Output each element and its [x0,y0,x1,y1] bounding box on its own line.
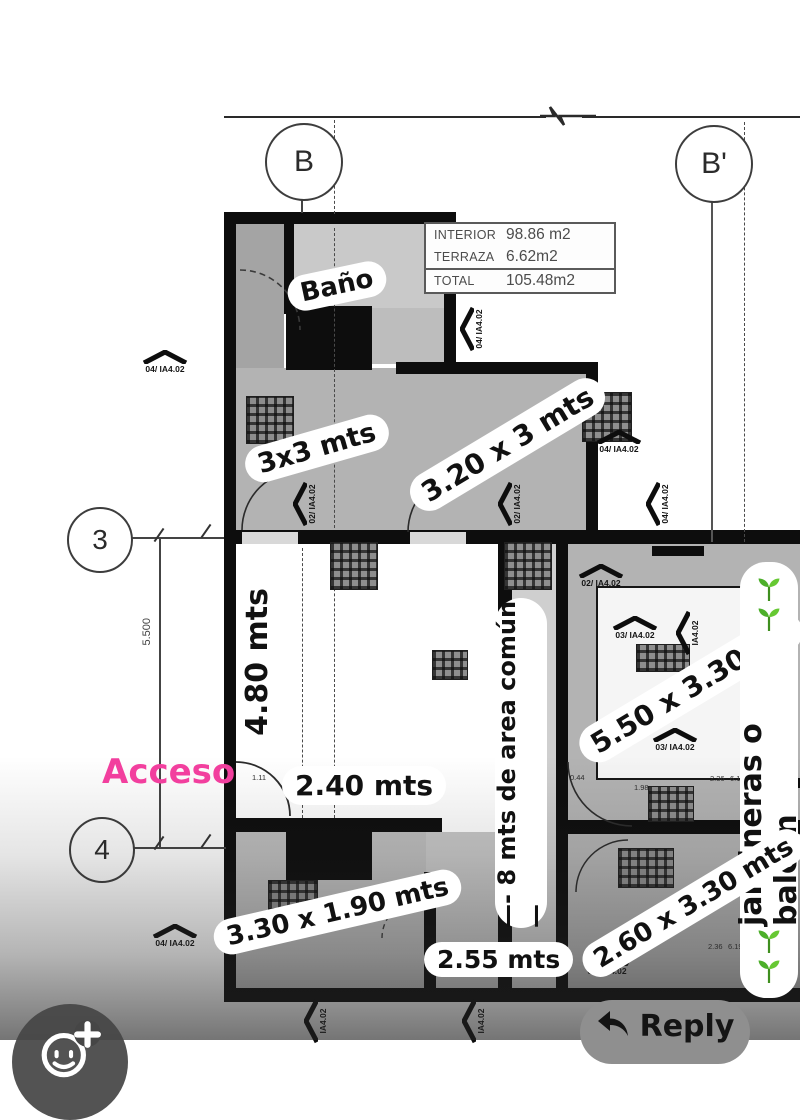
break-mark [540,102,596,130]
area-summary-table: INTERIOR98.86 m2 TERRAZA6.62m2 TOTAL105.… [424,222,616,294]
add-reaction-button[interactable] [12,1004,128,1120]
sticker-acceso: Acceso [102,752,235,792]
tiny-dimension: 2.36 [708,942,723,951]
reply-arrow-icon [596,1009,630,1047]
grid-label: B' [701,147,727,181]
section-marker: 02/ IA4.02 [566,564,636,588]
reply-label: Reply [640,1009,735,1044]
tiny-dimension: 1.98 [634,783,649,792]
dimension-tick [201,524,212,538]
seedling-icon [756,926,782,956]
legend-symbol [432,650,468,680]
roof-arrow-icon [460,306,474,352]
grid-label: 4 [94,834,110,866]
dimension-tick [201,834,212,848]
section-marker: 04/ IA4.02 [130,350,200,374]
table-row: INTERIOR98.86 m2 [426,224,614,246]
wall-segment [224,212,456,224]
roof-arrow-icon [612,616,658,630]
grid-bubble-b: B [265,123,343,201]
grid-bubble-3: 3 [67,507,133,573]
roof-arrow-icon [596,430,642,444]
section-marker: 04/ IA4.02 [646,469,670,539]
roof-arrow-icon [646,481,660,527]
section-marker: IA4.02 [676,598,700,668]
wall-segment [652,546,704,556]
roof-arrow-icon [676,610,690,656]
seedling-icon [756,956,782,986]
section-marker: 04/ IA4.02 [460,294,484,364]
sticker-dim-255: 2.55 mts [424,942,573,977]
roof-arrow-icon [304,998,318,1044]
legend-symbol [648,786,694,822]
roof-arrow-icon [578,564,624,578]
roof-arrow-icon [462,998,476,1044]
tiny-dimension: 2.36 [710,774,725,783]
roof-arrow-icon [498,481,512,527]
roof-arrow-icon [142,350,188,364]
section-marker: 04/ IA4.02 [584,430,654,454]
reply-button[interactable]: Reply [580,1000,750,1064]
sticker-common-area: —- 8 mts de area común — [495,598,547,928]
door-opening [242,532,298,544]
section-marker: 04/ IA4.02 [140,924,210,948]
table-value: 6.62m2 [506,248,558,266]
roof-arrow-icon [652,728,698,742]
door-arc [566,760,634,828]
grid-leader [128,537,224,539]
shaft-block [286,818,372,880]
seedling-icon [756,604,782,634]
grid-leader [130,847,226,849]
legend-symbol [504,542,552,590]
wall-segment [224,212,236,1002]
section-marker: 02/ IA4.02 [498,469,522,539]
tiny-dimension: 0.44 [570,773,585,782]
seedling-icon [756,574,782,604]
section-marker: 02/ IA4.02 [293,469,317,539]
legend-symbol [330,542,378,590]
site-boundary-line [224,116,800,118]
table-label: INTERIOR [434,228,506,242]
room-fill [372,308,444,364]
roof-arrow-icon [293,481,307,527]
table-label: TERRAZA [434,250,506,264]
dimension-line [159,537,161,849]
legend-symbol [618,848,674,888]
dimension-label: 5.500 [141,618,153,646]
table-row: TOTAL105.48m2 [426,268,614,292]
grid-bubble-4: 4 [69,817,135,883]
sticker-jardineras: jardineras o balcón [740,562,798,998]
table-row: TERRAZA6.62m2 [426,246,614,268]
grid-leader [711,202,713,542]
section-marker: 03/ IA4.02 [600,616,670,640]
table-value: 105.48m2 [506,272,575,290]
table-label: TOTAL [434,274,506,288]
section-marker: IA4.02 [462,986,486,1056]
grid-label: B [294,145,314,179]
wall-segment [396,362,598,374]
add-reaction-smiley-plus-icon [37,1018,103,1119]
tiny-dimension: 1.11 [252,773,266,782]
grid-bubble-b-prime: B' [675,125,753,203]
sticker-dim-240: 2.40 mts [282,766,446,805]
grid-label: 3 [92,524,108,556]
sticker-dim-480: 4.80 mts [240,588,275,744]
section-marker: IA4.02 [304,986,328,1056]
roof-arrow-icon [152,924,198,938]
table-value: 98.86 m2 [506,226,571,244]
